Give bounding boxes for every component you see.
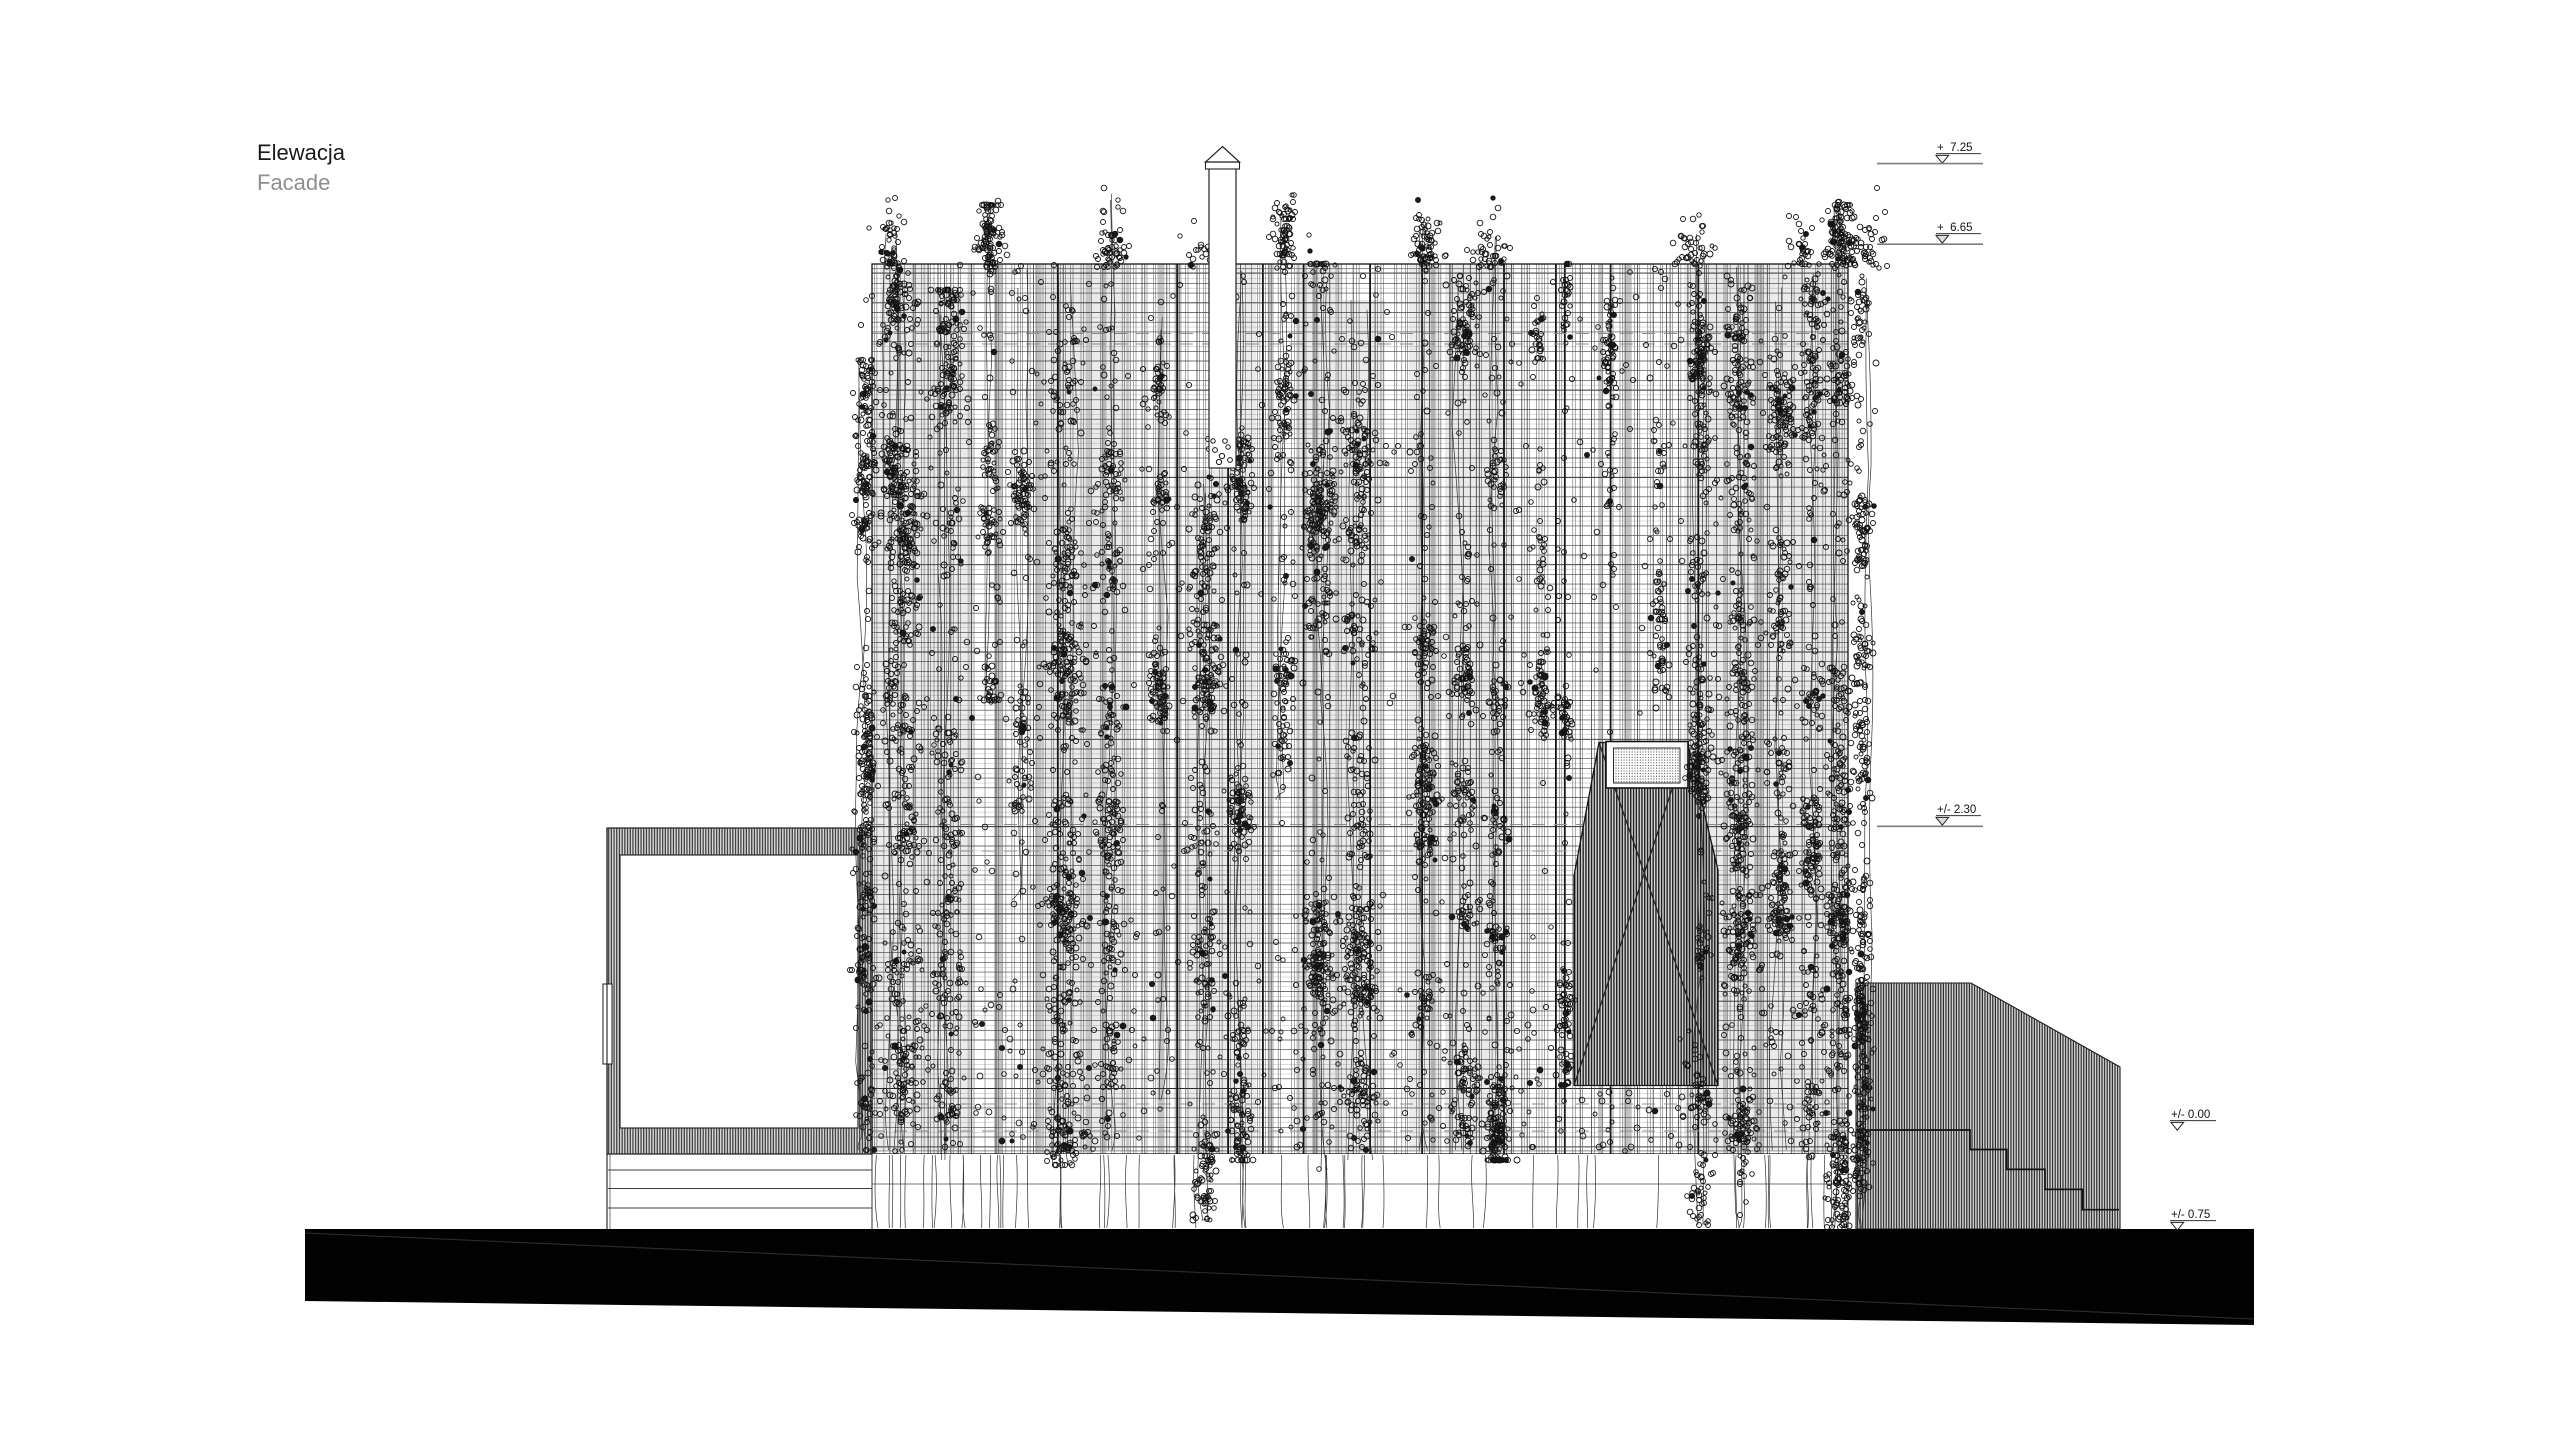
svg-text:Elewacja: Elewacja <box>257 140 346 165</box>
svg-text:Facade: Facade <box>257 170 330 195</box>
